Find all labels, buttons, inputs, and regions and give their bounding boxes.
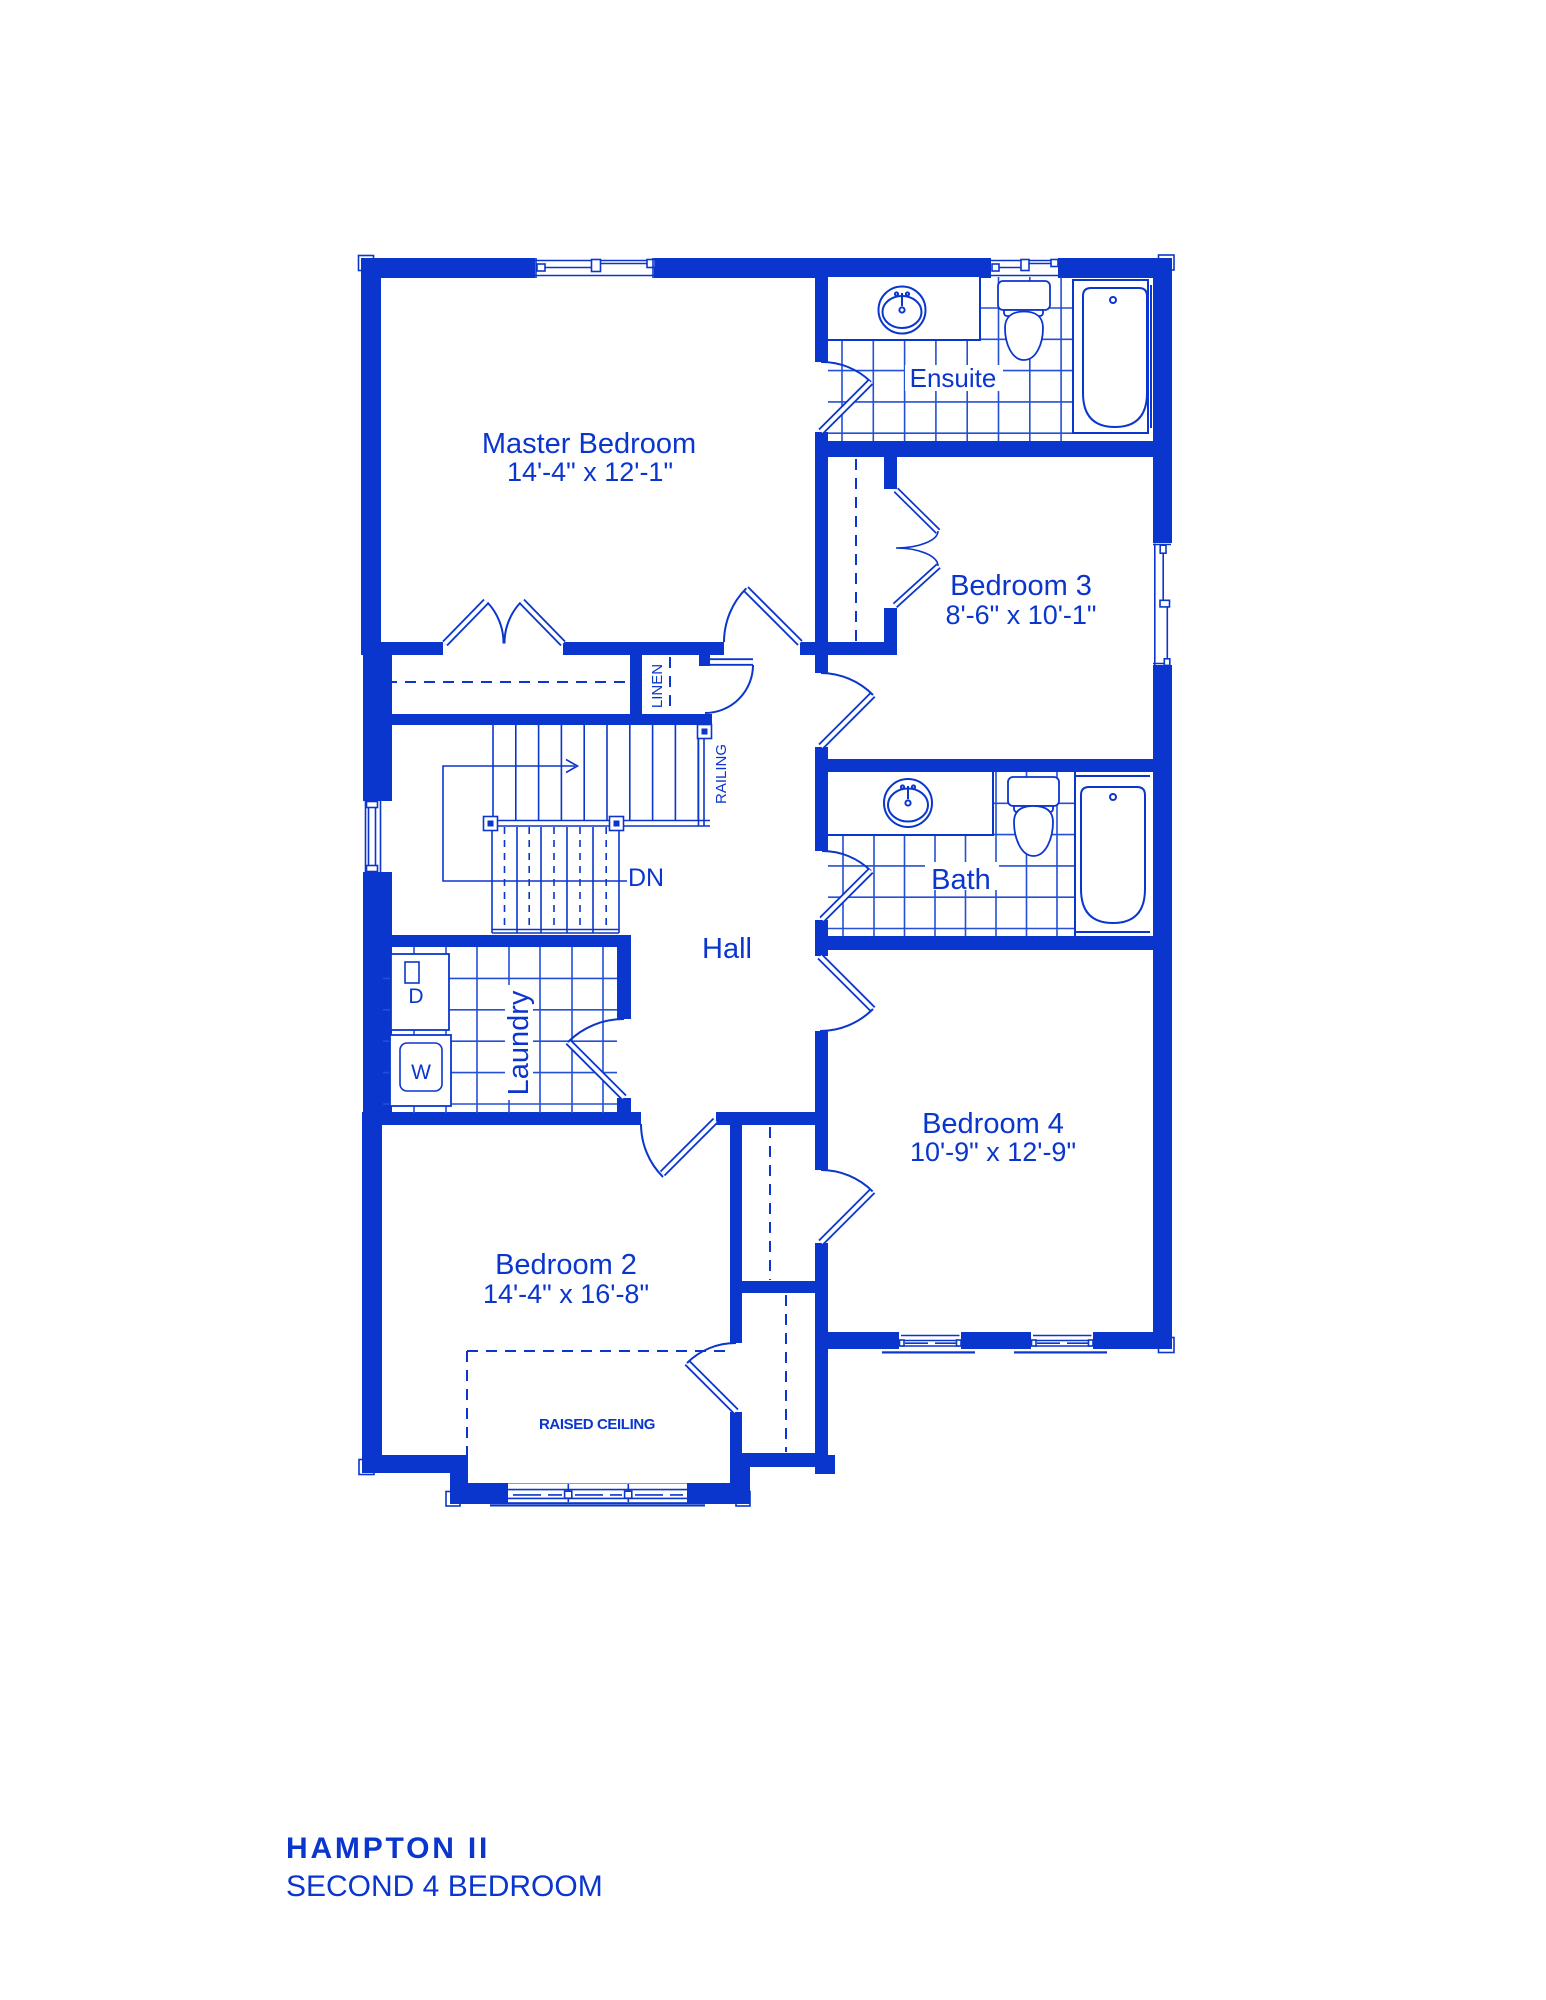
svg-text:Laundry: Laundry xyxy=(503,990,535,1095)
svg-text:14'-4" x 12'-1": 14'-4" x 12'-1" xyxy=(507,457,673,487)
svg-text:14'-4" x 16'-8": 14'-4" x 16'-8" xyxy=(483,1279,649,1309)
svg-text:DN: DN xyxy=(628,864,664,892)
svg-text:Bedroom 2: Bedroom 2 xyxy=(495,1249,637,1281)
svg-text:SECOND 4 BEDROOM: SECOND 4 BEDROOM xyxy=(286,1870,603,1903)
svg-text:RAISED CEILING: RAISED CEILING xyxy=(539,1416,655,1433)
svg-text:10'-9" x 12'-9": 10'-9" x 12'-9" xyxy=(910,1137,1076,1167)
svg-text:HAMPTON II: HAMPTON II xyxy=(286,1832,490,1865)
svg-text:D: D xyxy=(408,985,423,1008)
svg-text:W: W xyxy=(411,1061,431,1084)
svg-text:Bedroom 3: Bedroom 3 xyxy=(950,570,1092,602)
svg-text:RAILING: RAILING xyxy=(713,744,730,804)
svg-text:Master Bedroom: Master Bedroom xyxy=(482,428,696,460)
svg-text:LINEN: LINEN xyxy=(649,664,666,708)
svg-text:Ensuite: Ensuite xyxy=(910,363,997,393)
svg-text:Hall: Hall xyxy=(702,933,752,965)
svg-text:Bath: Bath xyxy=(931,864,991,896)
svg-text:8'-6" x 10'-1": 8'-6" x 10'-1" xyxy=(945,600,1096,630)
svg-text:Bedroom 4: Bedroom 4 xyxy=(922,1108,1064,1140)
